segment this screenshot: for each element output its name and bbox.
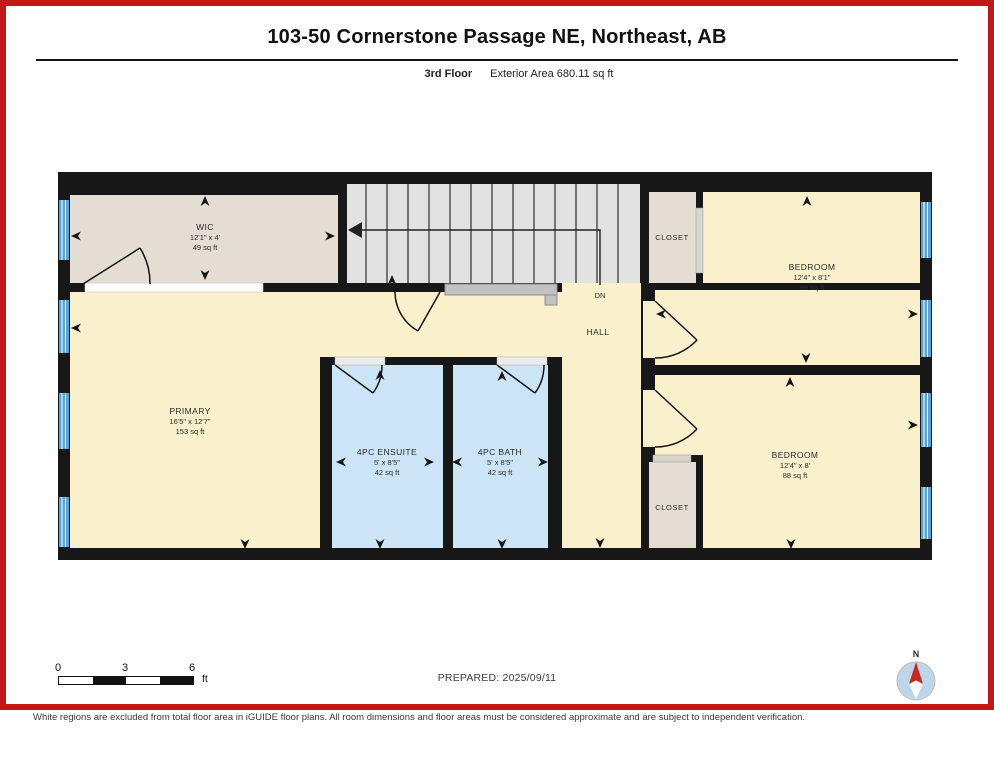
exterior-area-label: Exterior Area 680.11 sq ft [490, 68, 613, 80]
window-right-1 [921, 202, 931, 258]
closet-bottom-opening [653, 455, 691, 462]
wic-area: 49 sq ft [193, 243, 219, 252]
stairs-dn-label: DN [595, 291, 606, 300]
floorplan-svg: WIC 12'1" x 4' 49 sq ft CLOSET BEDROOM 1… [55, 168, 935, 570]
wic-dims: 12'1" x 4' [190, 233, 221, 242]
room-stairs [347, 184, 640, 283]
room-bedroom-bottom [655, 375, 920, 455]
wic-opening [85, 283, 263, 292]
bedroom-bottom-opening [643, 390, 655, 447]
title-divider [36, 59, 958, 61]
floor-subtitle: 3rd Floor Exterior Area 680.11 sq ft [22, 68, 994, 80]
disclaimer-text: White regions are excluded from total fl… [33, 712, 973, 723]
closet-top-name: CLOSET [655, 233, 689, 242]
bedroom-bottom-name: BEDROOM [772, 450, 819, 460]
ensuite-dims: 5' x 8'5" [374, 458, 400, 467]
closet-bottom-name: CLOSET [655, 503, 689, 512]
bath-name: 4PC BATH [478, 447, 522, 457]
compass-icon: N [894, 646, 938, 704]
primary-area: 153 sq ft [176, 427, 206, 436]
bath-area: 42 sq ft [488, 468, 514, 477]
bedroom-top-name: BEDROOM [789, 262, 836, 272]
window-right-3 [921, 393, 931, 447]
prepared-date: PREPARED: 2025/09/11 [0, 672, 994, 684]
bath-dims: 5' x 8'5" [487, 458, 513, 467]
room-hall [562, 283, 641, 548]
room-bedroom-top-lower [655, 290, 920, 365]
closet-top-opening [696, 208, 703, 273]
page-title: 103-50 Cornerstone Passage NE, Northeast… [0, 26, 994, 49]
stair-landing-notch [545, 295, 557, 305]
floor-label: 3rd Floor [425, 68, 473, 80]
window-right-2 [921, 300, 931, 357]
window-left-wic [59, 200, 69, 260]
window-left-1 [59, 300, 69, 353]
ensuite-name: 4PC ENSUITE [357, 447, 417, 457]
bedroom-bottom-dims: 12'4" x 8' [780, 461, 811, 470]
ensuite-opening [335, 357, 385, 365]
bedroom-top-area: 89 sq ft [800, 283, 826, 292]
bedroom-top-dims: 12'4" x 8'1" [794, 273, 831, 282]
floorplan-page: 103-50 Cornerstone Passage NE, Northeast… [0, 0, 994, 768]
wic-name: WIC [196, 222, 214, 232]
window-left-3 [59, 497, 69, 547]
compass-north-label: N [913, 649, 920, 659]
compass: N [894, 646, 938, 704]
bedroom-top-opening [643, 301, 655, 358]
bath-opening [497, 357, 547, 365]
ensuite-area: 42 sq ft [375, 468, 401, 477]
hall-name: HALL [587, 327, 610, 337]
bedroom-bottom-area: 88 sq ft [783, 471, 809, 480]
window-right-4 [921, 487, 931, 539]
floorplan-drawing: WIC 12'1" x 4' 49 sq ft CLOSET BEDROOM 1… [55, 168, 935, 570]
primary-name: PRIMARY [169, 406, 210, 416]
stair-landing-edge [445, 284, 557, 295]
primary-dims: 16'5" x 12'7" [169, 417, 210, 426]
room-bedroom-bottom-lower [703, 455, 920, 548]
window-left-2 [59, 393, 69, 449]
